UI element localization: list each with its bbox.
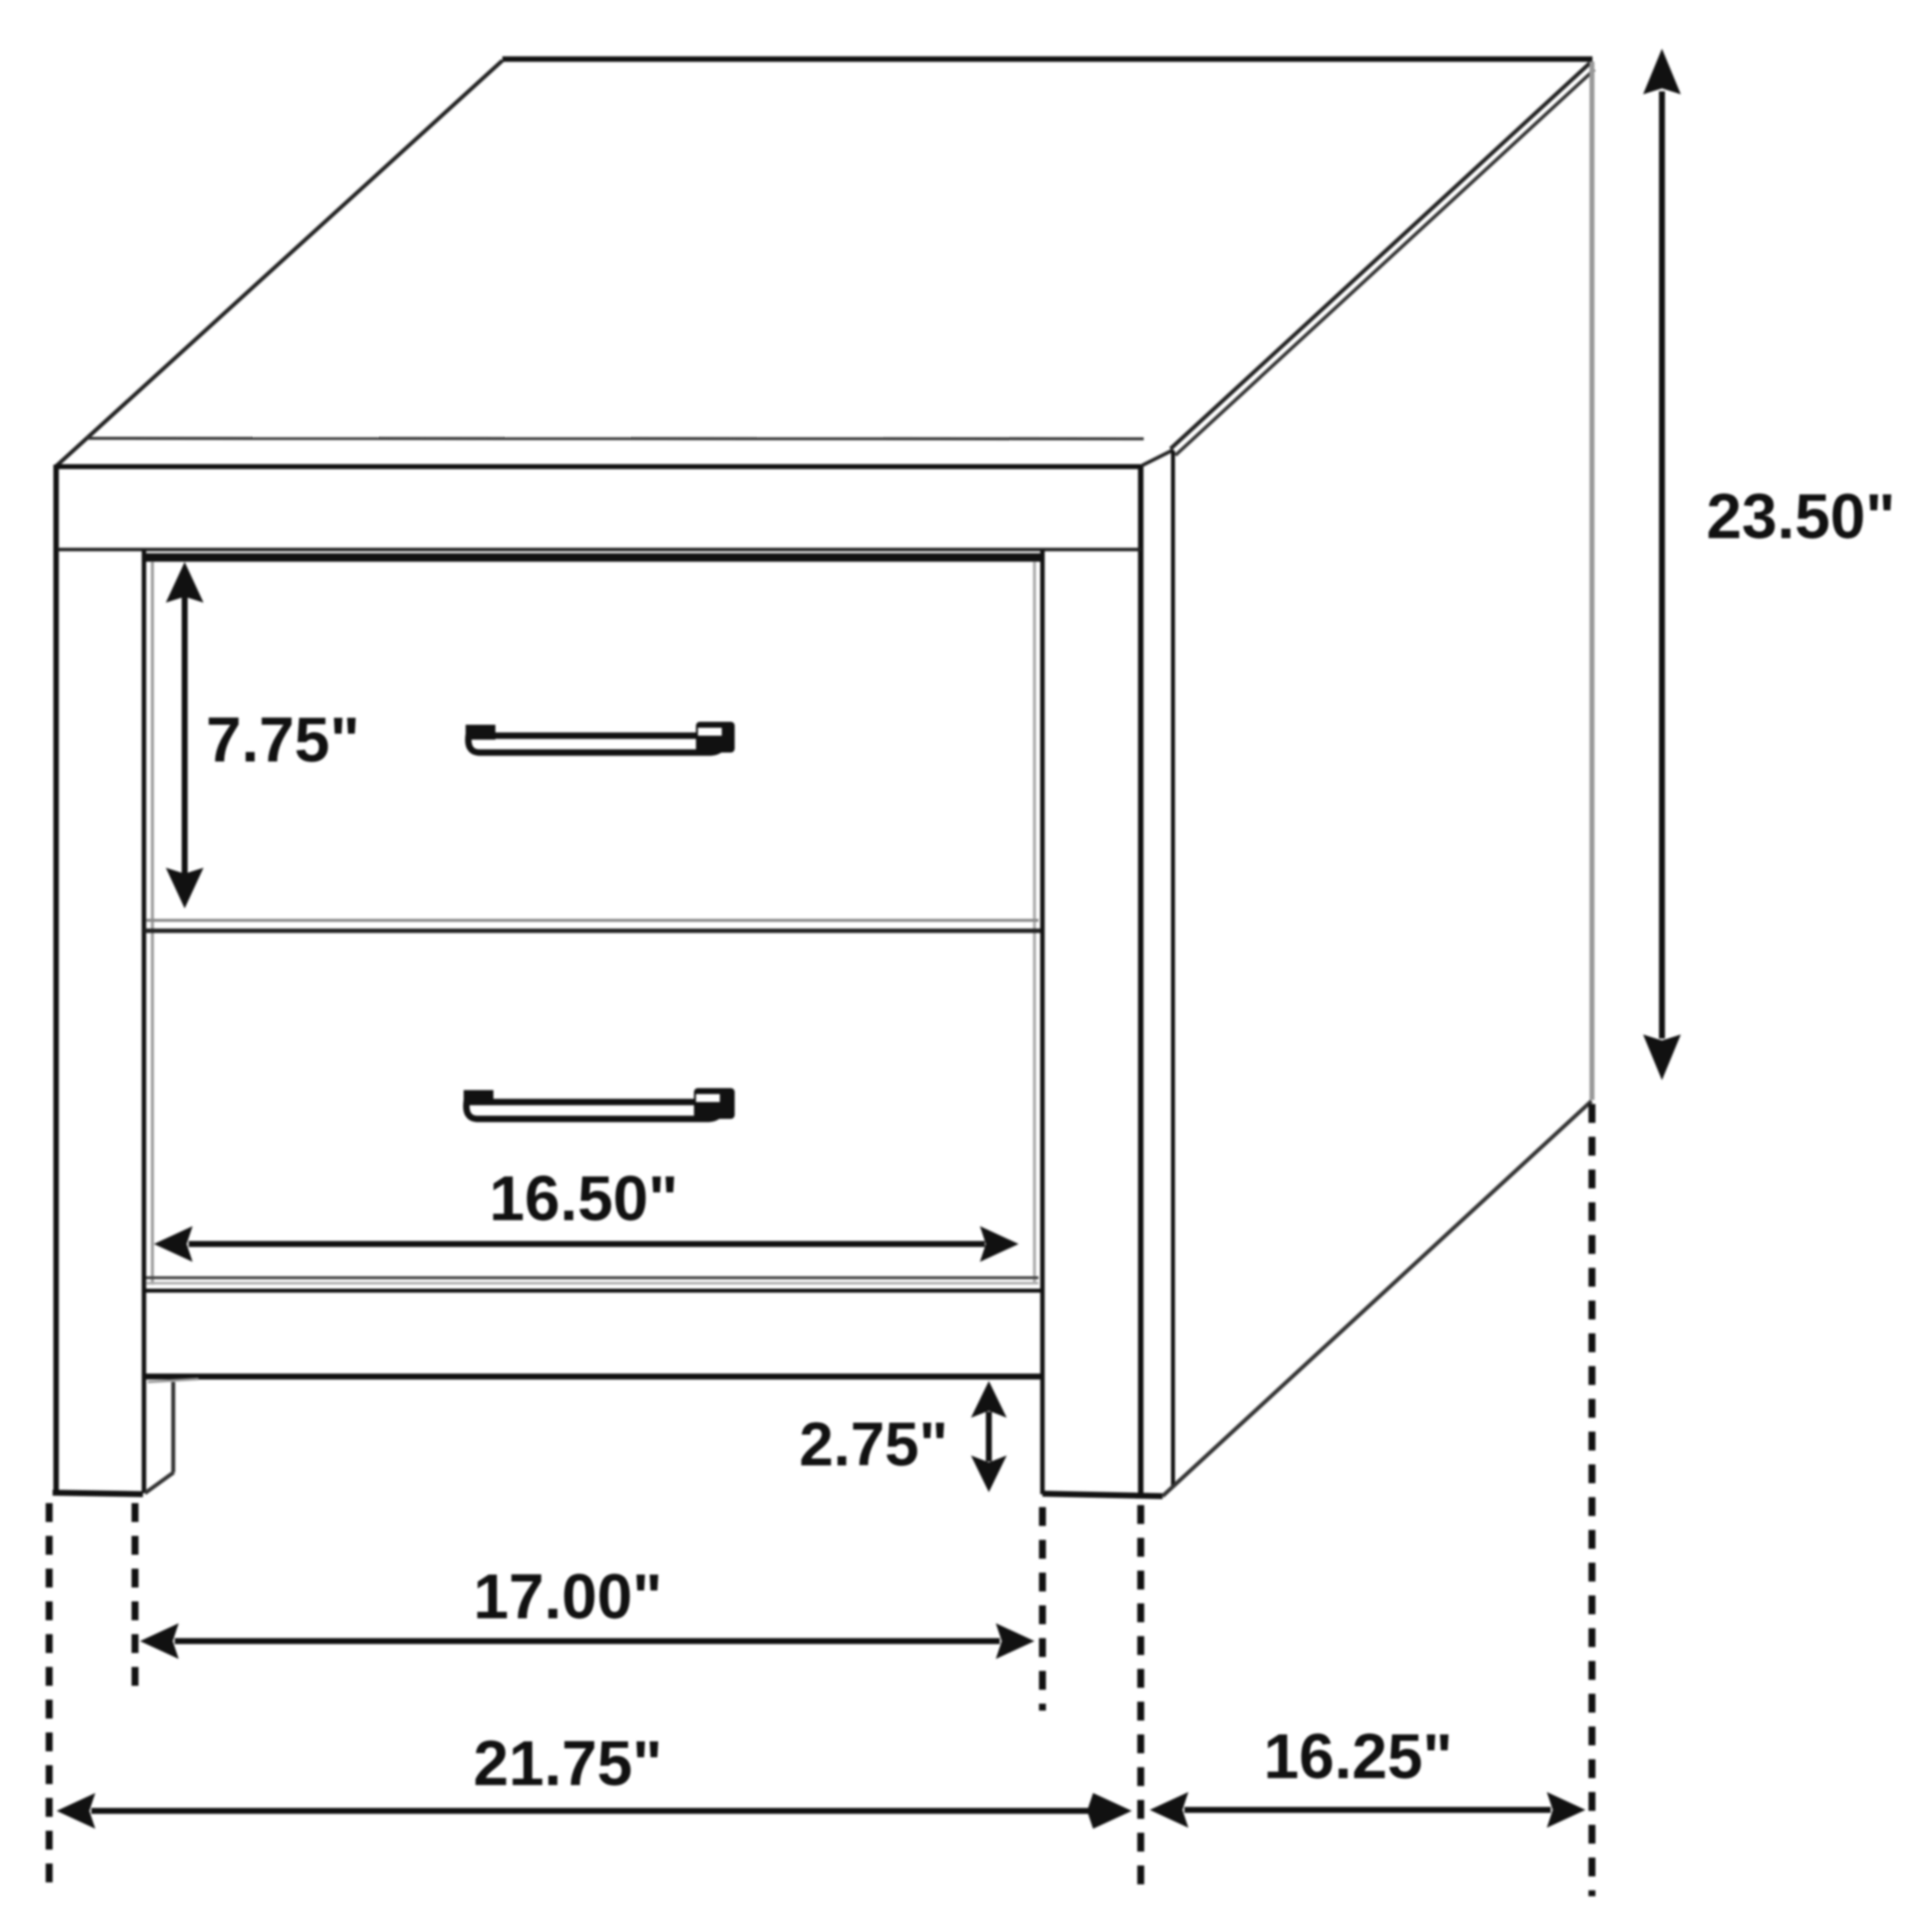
svg-text:17.00": 17.00" — [474, 1561, 663, 1632]
svg-text:7.75": 7.75" — [207, 704, 360, 775]
svg-text:2.75": 2.75" — [799, 1411, 948, 1479]
svg-text:23.50": 23.50" — [1707, 481, 1896, 552]
svg-text:16.25": 16.25" — [1264, 1721, 1453, 1792]
svg-text:16.50": 16.50" — [489, 1163, 679, 1234]
svg-text:21.75": 21.75" — [474, 1727, 663, 1799]
